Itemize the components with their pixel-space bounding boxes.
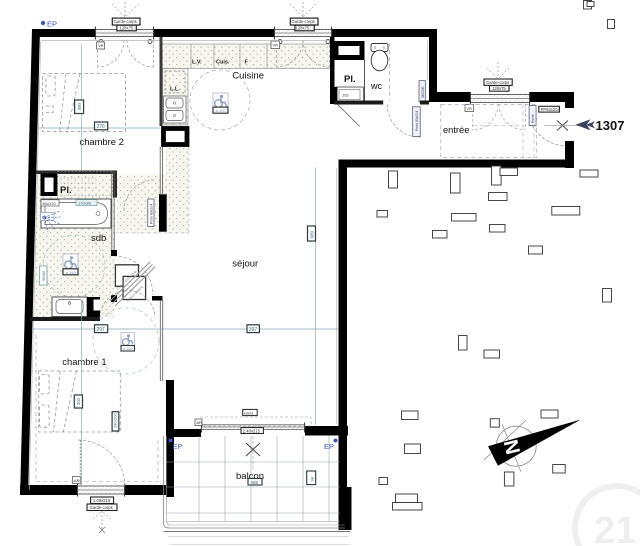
- svg-text:EP: EP: [173, 442, 183, 451]
- svg-text:EP: EP: [324, 442, 334, 451]
- svg-text:VR: VR: [466, 106, 472, 111]
- svg-text:128x75: 128x75: [120, 25, 134, 30]
- svg-text:21: 21: [594, 510, 636, 546]
- svg-text:Garde-corps: Garde-corps: [292, 19, 315, 24]
- svg-text:297: 297: [97, 327, 106, 333]
- svg-text:entrée: entrée: [443, 125, 469, 135]
- svg-text:Garde-corps: Garde-corps: [90, 505, 113, 510]
- svg-text:128x75: 128x75: [296, 25, 310, 30]
- svg-text:VR: VR: [98, 43, 104, 48]
- svg-text:Horiz.: Horiz.: [244, 410, 254, 415]
- svg-text:Porte: Porte: [531, 114, 535, 123]
- svg-text:AR: AR: [196, 420, 202, 425]
- svg-text:AR: AR: [74, 478, 80, 483]
- svg-text:2.40x215: 2.40x215: [243, 428, 261, 433]
- svg-text:1307: 1307: [596, 118, 625, 133]
- svg-text:séjour: séjour: [232, 259, 258, 270]
- svg-text:80x170: 80x170: [43, 201, 57, 206]
- svg-text:Cuis.: Cuis.: [216, 60, 230, 66]
- svg-text:Garde-corps: Garde-corps: [486, 80, 509, 85]
- svg-text:102: 102: [342, 93, 349, 98]
- svg-text:chambre 1: chambre 1: [62, 356, 106, 367]
- svg-text:EP: EP: [47, 20, 57, 29]
- svg-text:L.V.: L.V.: [192, 60, 202, 66]
- svg-text:397: 397: [249, 327, 258, 333]
- svg-text:280x200: 280x200: [113, 413, 117, 428]
- svg-text:Cuisine: Cuisine: [232, 71, 264, 82]
- svg-text:300: 300: [77, 102, 82, 110]
- svg-text:170x80: 170x80: [78, 201, 92, 206]
- svg-text:276: 276: [97, 124, 106, 130]
- svg-text:Porte 83x204: Porte 83x204: [415, 111, 419, 131]
- svg-text:128x75: 128x75: [492, 86, 506, 91]
- svg-text:VR: VR: [273, 43, 279, 48]
- svg-text:Pl.: Pl.: [60, 185, 72, 196]
- svg-text:⌀ 150: ⌀ 150: [216, 108, 227, 113]
- svg-text:L.L.: L.L.: [170, 87, 180, 93]
- svg-text:SECHE: SECHE: [421, 86, 425, 98]
- svg-text:Garde-corps: Garde-corps: [114, 19, 137, 24]
- svg-text:Porte 83x204: Porte 83x204: [149, 204, 153, 224]
- svg-text:680: 680: [309, 230, 314, 238]
- svg-text:98: 98: [310, 476, 315, 481]
- svg-text:PP93x204: PP93x204: [541, 107, 561, 112]
- svg-text:90x60: 90x60: [42, 271, 46, 281]
- svg-text:⌀ 150: ⌀ 150: [66, 270, 77, 275]
- svg-text:chambre 2: chambre 2: [80, 136, 124, 147]
- svg-text:1.09x219: 1.09x219: [93, 498, 111, 503]
- svg-text:wc: wc: [370, 81, 382, 91]
- svg-text:sdb: sdb: [91, 233, 106, 244]
- svg-text:⌀ 150: ⌀ 150: [123, 347, 132, 351]
- svg-text:300: 300: [76, 397, 81, 405]
- svg-text:388: 388: [251, 480, 259, 485]
- svg-text:Pl.: Pl.: [344, 74, 356, 85]
